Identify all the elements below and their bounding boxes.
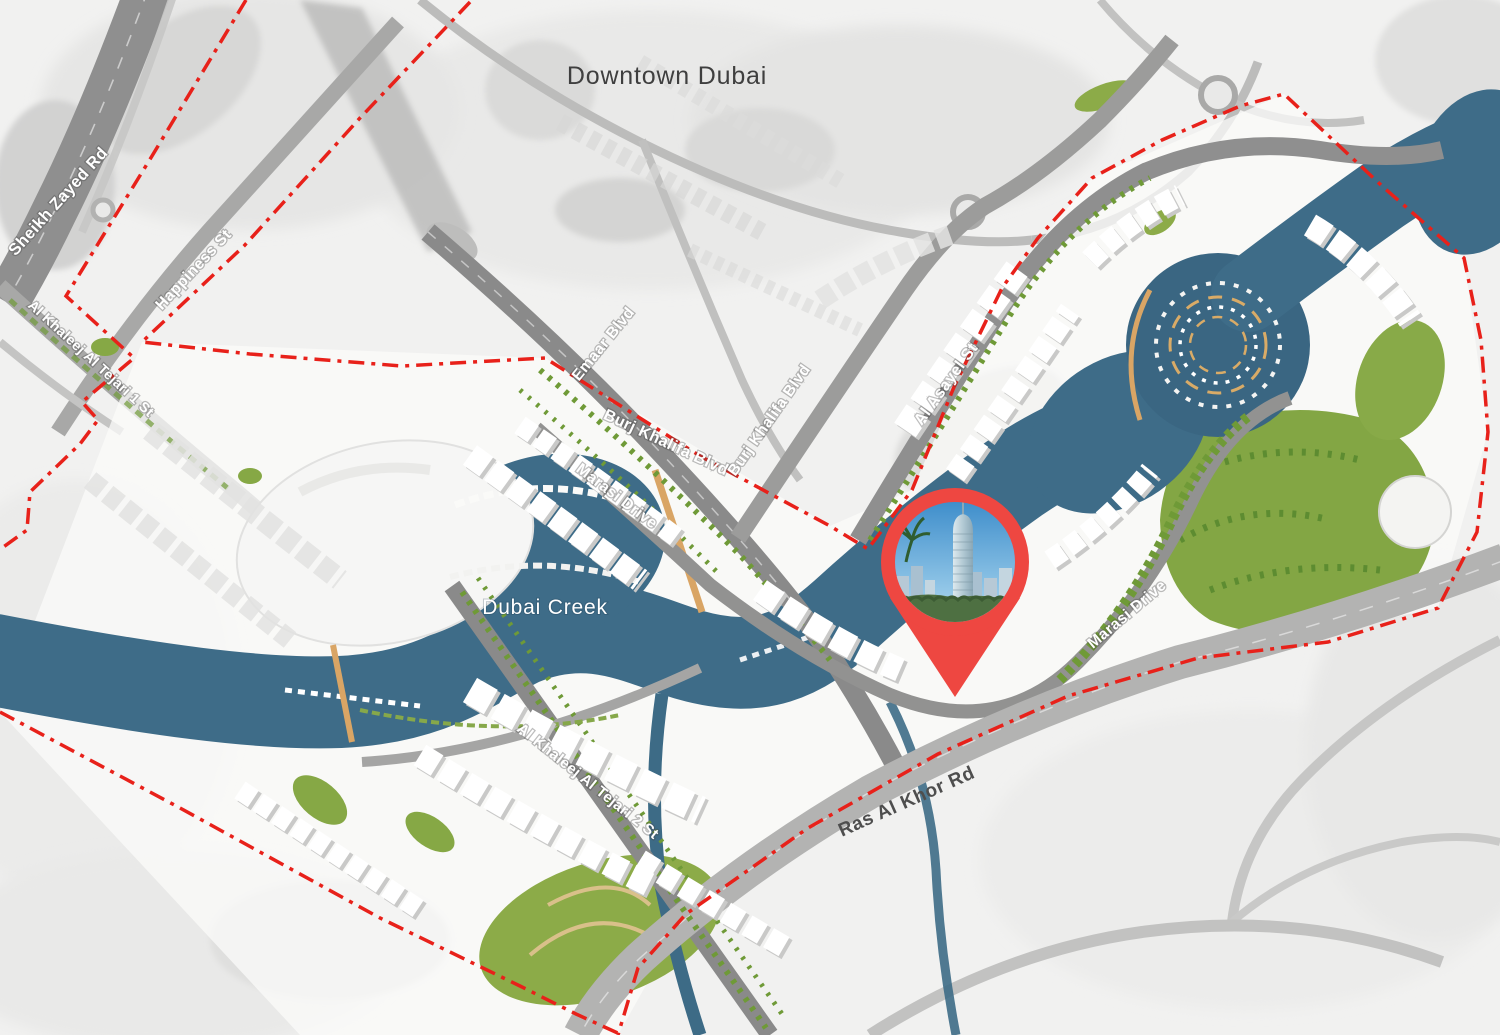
- label-dubai-creek: Dubai Creek: [482, 596, 608, 619]
- label-downtown-dubai: Downtown Dubai: [567, 62, 767, 90]
- park-white-circle: [1379, 476, 1451, 548]
- map-canvas: Downtown Dubai Dubai Creek Sheikh Zayed …: [0, 0, 1500, 1035]
